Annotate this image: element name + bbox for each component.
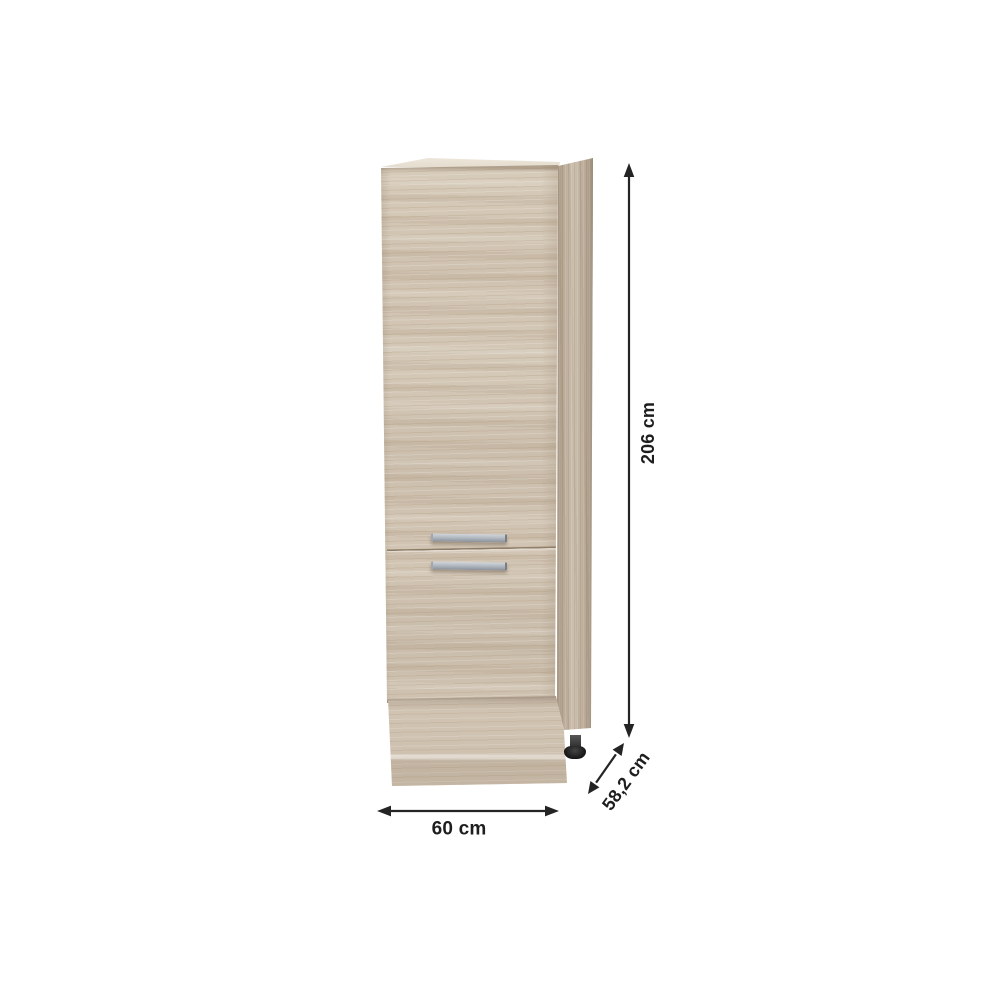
height-arrow-icon xyxy=(624,163,635,738)
dimension-arrows xyxy=(0,0,1000,1000)
height-dimension-label: 206 cm xyxy=(639,402,657,464)
product-image: 206 cm 60 cm 58,2 cm xyxy=(0,0,1000,1000)
width-arrow-icon xyxy=(377,806,559,817)
width-dimension-label: 60 cm xyxy=(432,820,487,839)
